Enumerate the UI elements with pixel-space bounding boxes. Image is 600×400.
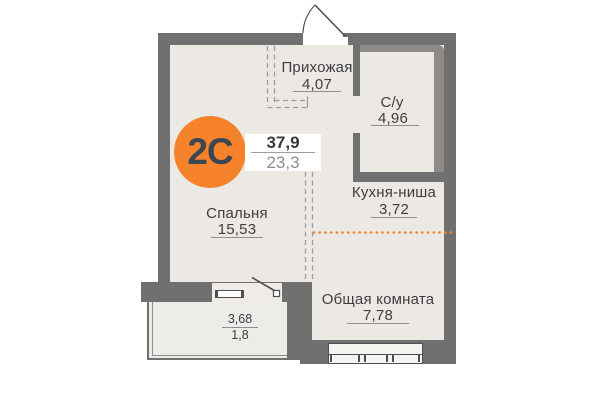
- window-tick: [364, 355, 366, 362]
- apartment-type-badge: 2С: [174, 116, 246, 188]
- balcony-area-counted: 1,8: [231, 329, 248, 342]
- entrance-door-arc-icon: [303, 5, 315, 33]
- area-underline-kitchen: [371, 217, 417, 218]
- wall-left: [158, 33, 170, 302]
- balcony: [147, 302, 287, 360]
- window-tick: [418, 355, 420, 362]
- window-tick: [358, 355, 360, 362]
- area-underline-living: [347, 323, 409, 324]
- wall-top-right: [343, 33, 456, 45]
- area-underline-bathroom: [371, 125, 419, 126]
- window-tick: [386, 355, 388, 362]
- badge-label: 2С: [187, 131, 232, 173]
- balcony-window-bar: [215, 290, 244, 298]
- room-label-hallway: Прихожая: [281, 60, 352, 77]
- wall-right: [444, 33, 456, 364]
- floor-plan: 2С 37,9 23,3 Прихожая 4,07 С/у 4,96 Кухн…: [0, 0, 600, 400]
- wall-bathroom-bottom: [353, 172, 444, 182]
- balcony-area-total: 3,68: [228, 313, 252, 326]
- living-room-window: [328, 343, 423, 364]
- window-tick: [330, 355, 332, 362]
- wall-top-left: [158, 33, 303, 45]
- area-underline-bedroom: [211, 237, 263, 238]
- living-area-value: 23,3: [245, 154, 321, 171]
- total-area-value: 37,9: [245, 134, 321, 151]
- area-card: 37,9 23,3: [245, 134, 321, 171]
- balcony-inner-line: [152, 302, 287, 356]
- room-label-kitchen: Кухня-ниша: [352, 185, 436, 202]
- area-underline-hallway: [293, 91, 341, 92]
- entrance-door-leaf-icon: [315, 5, 345, 36]
- window-tick: [392, 355, 394, 362]
- entrance-door-frame-notch: [343, 37, 348, 45]
- wall-bathroom-left-upper: [353, 45, 360, 96]
- window-divider-line: [329, 354, 422, 355]
